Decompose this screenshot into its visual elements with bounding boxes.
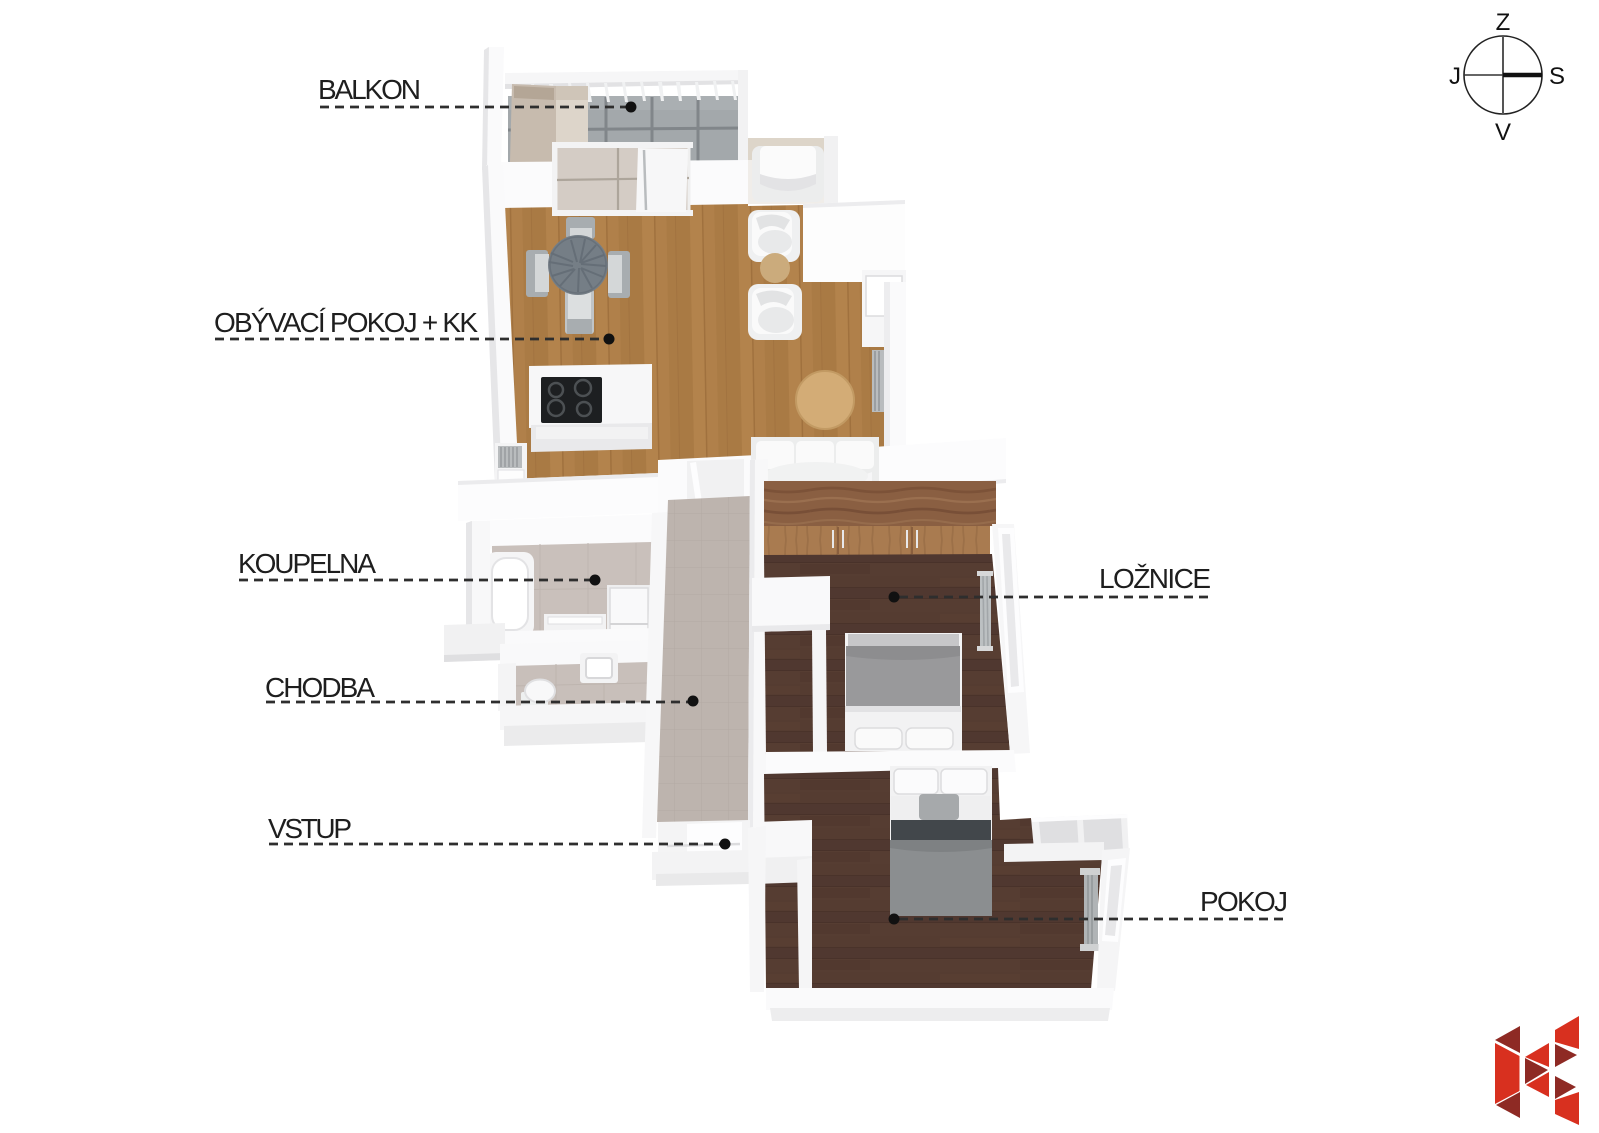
svg-text:OBÝVACÍ POKOJ + KK: OBÝVACÍ POKOJ + KK: [214, 307, 478, 338]
svg-text:LOŽNICE: LOŽNICE: [1099, 563, 1211, 594]
svg-text:VSTUP: VSTUP: [268, 813, 352, 844]
svg-text:V: V: [1495, 119, 1511, 146]
svg-text:POKOJ: POKOJ: [1200, 886, 1288, 917]
svg-text:BALKON: BALKON: [318, 74, 421, 105]
svg-text:S: S: [1549, 63, 1565, 90]
svg-text:J: J: [1449, 63, 1461, 90]
svg-text:KOUPELNA: KOUPELNA: [238, 548, 376, 579]
svg-text:Z: Z: [1496, 9, 1511, 36]
svg-text:CHODBA: CHODBA: [265, 672, 375, 703]
